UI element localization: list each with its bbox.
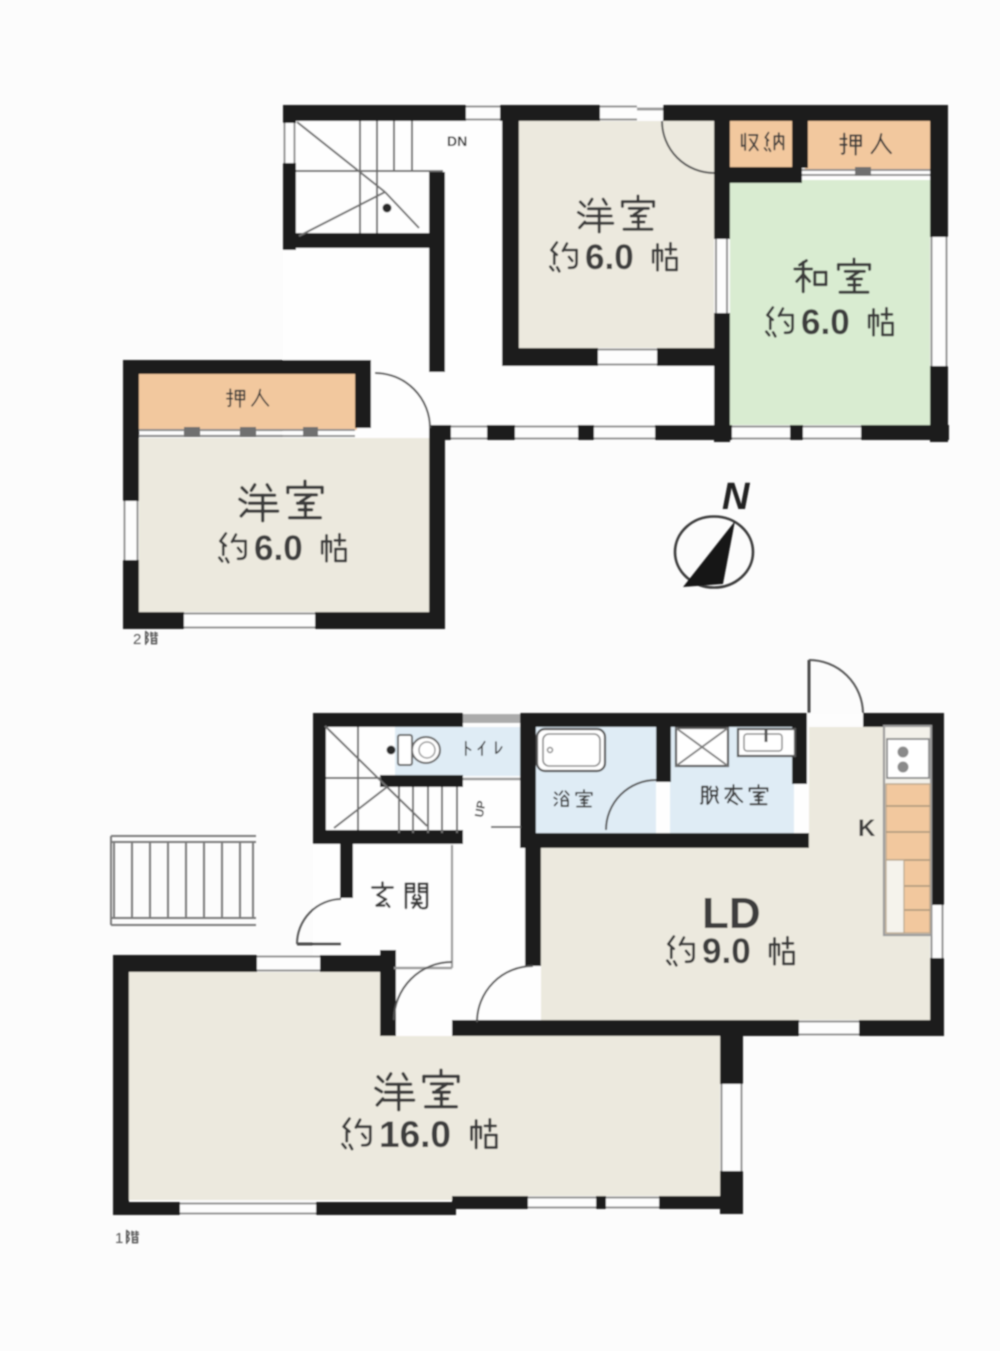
svg-text:DN: DN <box>447 133 467 149</box>
svg-text:LD: LD <box>702 889 761 938</box>
svg-text:6.0: 6.0 <box>801 303 850 342</box>
svg-text:1: 1 <box>115 1230 123 1247</box>
svg-text:UP: UP <box>472 800 489 819</box>
svg-text:16.0: 16.0 <box>379 1114 451 1155</box>
svg-text:2: 2 <box>133 631 141 648</box>
svg-text:K: K <box>858 815 876 842</box>
svg-text:6.0: 6.0 <box>254 529 303 568</box>
svg-text:N: N <box>722 476 751 518</box>
svg-text:9.0: 9.0 <box>702 932 751 971</box>
svg-text:6.0: 6.0 <box>585 238 634 277</box>
